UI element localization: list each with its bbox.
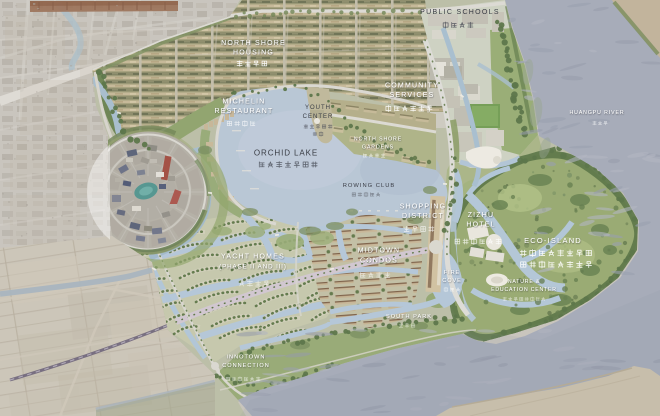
svg-text:FIRE: FIRE — [444, 270, 460, 276]
svg-text:SERVICES: SERVICES — [390, 92, 435, 99]
svg-text:RESTAURANT: RESTAURANT — [215, 108, 274, 115]
svg-text:GARDENS: GARDENS — [362, 145, 394, 151]
svg-text:INNOTOWN: INNOTOWN — [227, 355, 266, 361]
svg-text:CONDOS: CONDOS — [360, 258, 398, 265]
svg-text:CENTER: CENTER — [303, 114, 334, 120]
svg-text:SOUTH PARK: SOUTH PARK — [386, 314, 432, 320]
svg-text:DISTRICT: DISTRICT — [402, 213, 444, 220]
svg-text:MICHELIN: MICHELIN — [222, 99, 265, 106]
svg-text:ORCHID LAKE: ORCHID LAKE — [254, 149, 318, 158]
svg-text:EDUCATION CENTER: EDUCATION CENTER — [491, 287, 557, 293]
svg-text:YOUTH: YOUTH — [305, 105, 331, 111]
svg-text:ROWING CLUB: ROWING CLUB — [343, 183, 396, 189]
svg-text:PUBLIC SCHOOLS: PUBLIC SCHOOLS — [420, 9, 500, 16]
svg-text:CONNECTION: CONNECTION — [222, 363, 270, 369]
svg-text:(PHASE II AND III): (PHASE II AND III) — [219, 264, 287, 271]
svg-text:NORTH SHORE: NORTH SHORE — [354, 137, 402, 143]
svg-text:ECO-ISLAND: ECO-ISLAND — [524, 236, 582, 245]
svg-text:COMMUNITY: COMMUNITY — [385, 83, 439, 90]
svg-text:ZIZHU: ZIZHU — [468, 212, 495, 219]
svg-text:NATURE &: NATURE & — [508, 279, 540, 285]
svg-text:HUANGPU RIVER: HUANGPU RIVER — [570, 110, 625, 116]
svg-text:SHOPPING: SHOPPING — [400, 204, 447, 211]
svg-text:NORTH SHORE: NORTH SHORE — [221, 40, 286, 47]
svg-text:COVE: COVE — [442, 278, 461, 284]
svg-text:YACHT HOMES: YACHT HOMES — [221, 254, 285, 261]
svg-text:HOUSING: HOUSING — [233, 50, 274, 57]
svg-text:HOTEL: HOTEL — [466, 222, 495, 229]
svg-text:MIDTOWN: MIDTOWN — [358, 248, 401, 255]
